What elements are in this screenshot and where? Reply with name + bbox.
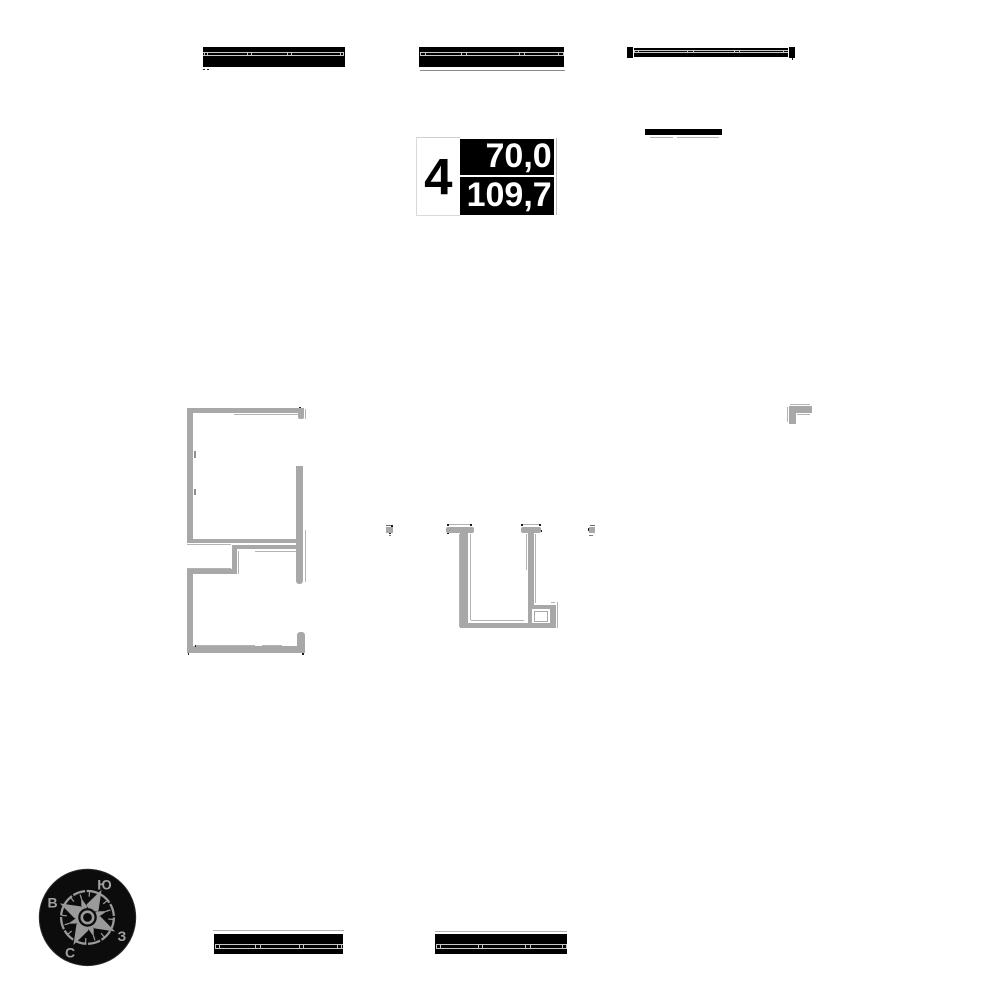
- svg-text:С: С: [65, 945, 75, 961]
- svg-text:З: З: [118, 928, 127, 944]
- svg-text:Ю: Ю: [97, 877, 111, 893]
- svg-text:В: В: [48, 895, 58, 911]
